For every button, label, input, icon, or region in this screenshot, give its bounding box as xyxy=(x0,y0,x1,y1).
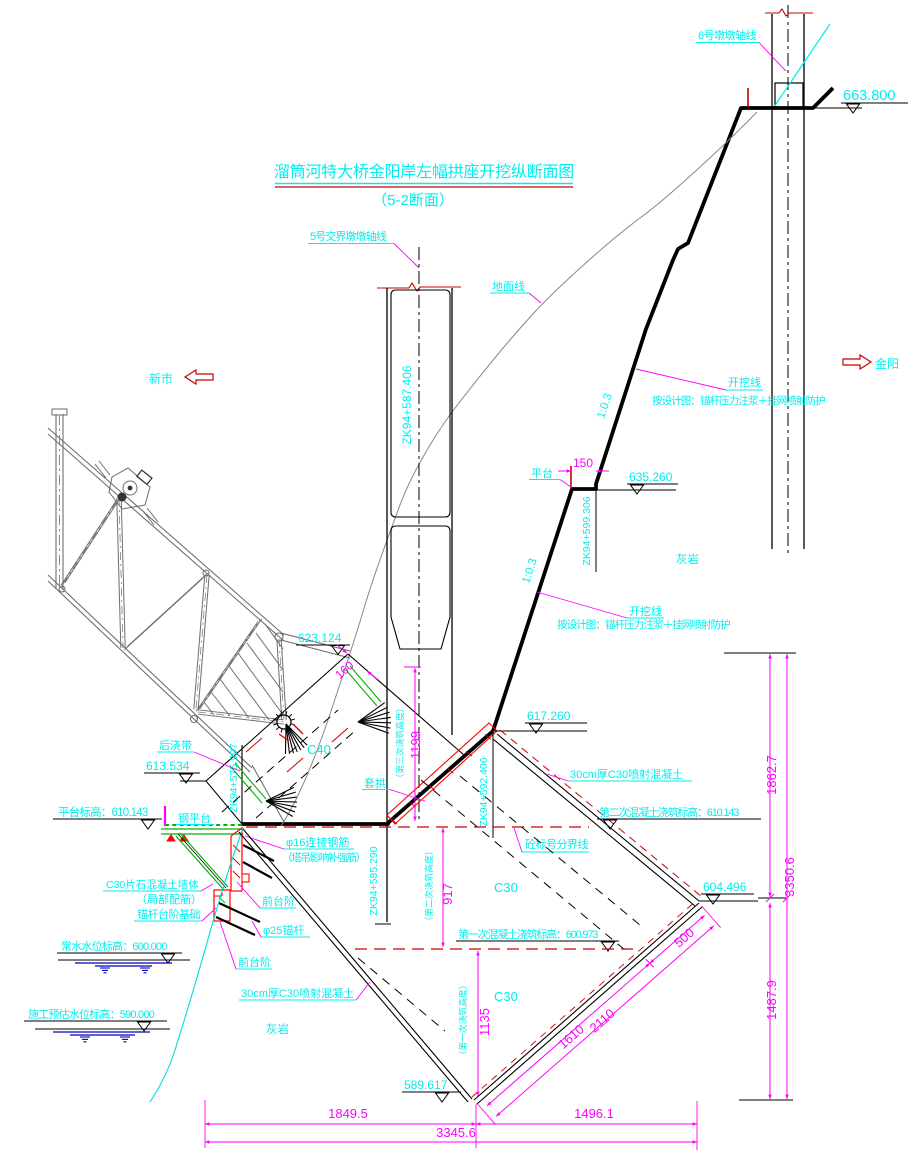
svg-text:灰岩: 灰岩 xyxy=(266,1022,289,1036)
svg-text:30cm厚C30喷射混凝土: 30cm厚C30喷射混凝土 xyxy=(570,767,683,781)
svg-text:604.496: 604.496 xyxy=(703,880,747,894)
svg-text:C30: C30 xyxy=(494,880,518,895)
svg-text:套拱: 套拱 xyxy=(364,776,386,790)
svg-text:ZK94+585.290: ZK94+585.290 xyxy=(368,846,380,915)
svg-text:φ16连接钢筋: φ16连接钢筋 xyxy=(286,835,349,849)
svg-text:C30: C30 xyxy=(494,989,518,1004)
svg-text:663.800: 663.800 xyxy=(843,88,895,104)
svg-text:按设计图：锚杆压力注浆＋挂网喷射防护: 按设计图：锚杆压力注浆＋挂网喷射防护 xyxy=(652,394,825,407)
svg-text:617.260: 617.260 xyxy=(527,709,571,723)
svg-text:前台阶: 前台阶 xyxy=(262,894,295,908)
svg-text:砼标号分界线: 砼标号分界线 xyxy=(525,837,588,851)
svg-text:ZK94+599.306: ZK94+599.306 xyxy=(581,496,593,565)
svg-text:1849.5: 1849.5 xyxy=(328,1106,368,1121)
svg-text:钢平台: 钢平台 xyxy=(178,811,211,825)
svg-text:589.617: 589.617 xyxy=(404,1078,448,1092)
svg-text:第一次混凝土浇筑标高：600.973: 第一次混凝土浇筑标高：600.973 xyxy=(458,927,598,941)
svg-text:（第三次浇筑高度）: （第三次浇筑高度） xyxy=(394,703,405,782)
svg-text:按设计图：锚杆压力注浆＋挂网喷射防护: 按设计图：锚杆压力注浆＋挂网喷射防护 xyxy=(557,618,730,631)
svg-text:金阳: 金阳 xyxy=(875,356,899,371)
svg-text:（第一次浇筑高度）: （第一次浇筑高度） xyxy=(457,980,468,1059)
svg-text:ZK94+592.406: ZK94+592.406 xyxy=(478,757,490,826)
svg-text:（局部配筋）: （局部配筋） xyxy=(136,892,202,906)
svg-text:1199: 1199 xyxy=(408,731,423,759)
svg-text:开挖线: 开挖线 xyxy=(629,604,662,618)
svg-text:6号墩墩轴线: 6号墩墩轴线 xyxy=(698,28,757,42)
svg-text:150: 150 xyxy=(573,456,593,470)
svg-text:溜筒河特大桥金阳岸左幅拱座开挖纵断面图: 溜筒河特大桥金阳岸左幅拱座开挖纵断面图 xyxy=(274,163,574,181)
svg-text:3345.6: 3345.6 xyxy=(436,1125,476,1140)
svg-text:623.124: 623.124 xyxy=(298,631,342,645)
svg-text:第二次混凝土浇筑标高：610.143: 第二次混凝土浇筑标高：610.143 xyxy=(599,805,739,819)
svg-text:平台标高：610.143: 平台标高：610.143 xyxy=(58,805,148,819)
svg-text:30cm厚C30喷射混凝土: 30cm厚C30喷射混凝土 xyxy=(241,986,354,1000)
svg-text:1135: 1135 xyxy=(477,1008,492,1036)
svg-text:（第二次浇筑高度）: （第二次浇筑高度） xyxy=(423,846,434,925)
svg-text:1862.7: 1862.7 xyxy=(764,755,779,795)
svg-text:前台阶: 前台阶 xyxy=(238,955,271,969)
svg-text:1487.9: 1487.9 xyxy=(764,980,779,1020)
svg-text:施工预估水位标高：590.000: 施工预估水位标高：590.000 xyxy=(28,1007,155,1021)
svg-text:φ25锚杆: φ25锚杆 xyxy=(263,923,304,937)
svg-text:ZK94+587.406: ZK94+587.406 xyxy=(400,365,414,444)
svg-text:3350.6: 3350.6 xyxy=(782,857,797,897)
svg-text:635.260: 635.260 xyxy=(629,470,673,484)
svg-text:新市: 新市 xyxy=(149,371,173,386)
svg-text:开挖线: 开挖线 xyxy=(728,375,761,389)
svg-text:917: 917 xyxy=(440,883,455,905)
svg-text:常水水位标高：600.000: 常水水位标高：600.000 xyxy=(61,939,167,953)
svg-text:（5-2断面）: （5-2断面） xyxy=(372,192,454,209)
svg-text:锚杆台阶基础: 锚杆台阶基础 xyxy=(137,907,200,921)
svg-text:（塔吊影响补强筋）: （塔吊影响补强筋） xyxy=(282,851,365,864)
svg-text:地面线: 地面线 xyxy=(492,279,525,293)
svg-text:5号交界墩墩轴线: 5号交界墩墩轴线 xyxy=(310,229,387,243)
svg-text:C40: C40 xyxy=(307,742,331,757)
svg-text:ZK94+575.997: ZK94+575.997 xyxy=(228,743,240,812)
svg-text:灰岩: 灰岩 xyxy=(676,552,699,566)
svg-text:613.534: 613.534 xyxy=(146,759,190,773)
svg-text:1496.1: 1496.1 xyxy=(574,1106,614,1121)
svg-text:后浇带: 后浇带 xyxy=(159,739,192,752)
svg-text:平台: 平台 xyxy=(531,466,553,480)
svg-text:C30片石混凝土墙体: C30片石混凝土墙体 xyxy=(106,878,199,891)
